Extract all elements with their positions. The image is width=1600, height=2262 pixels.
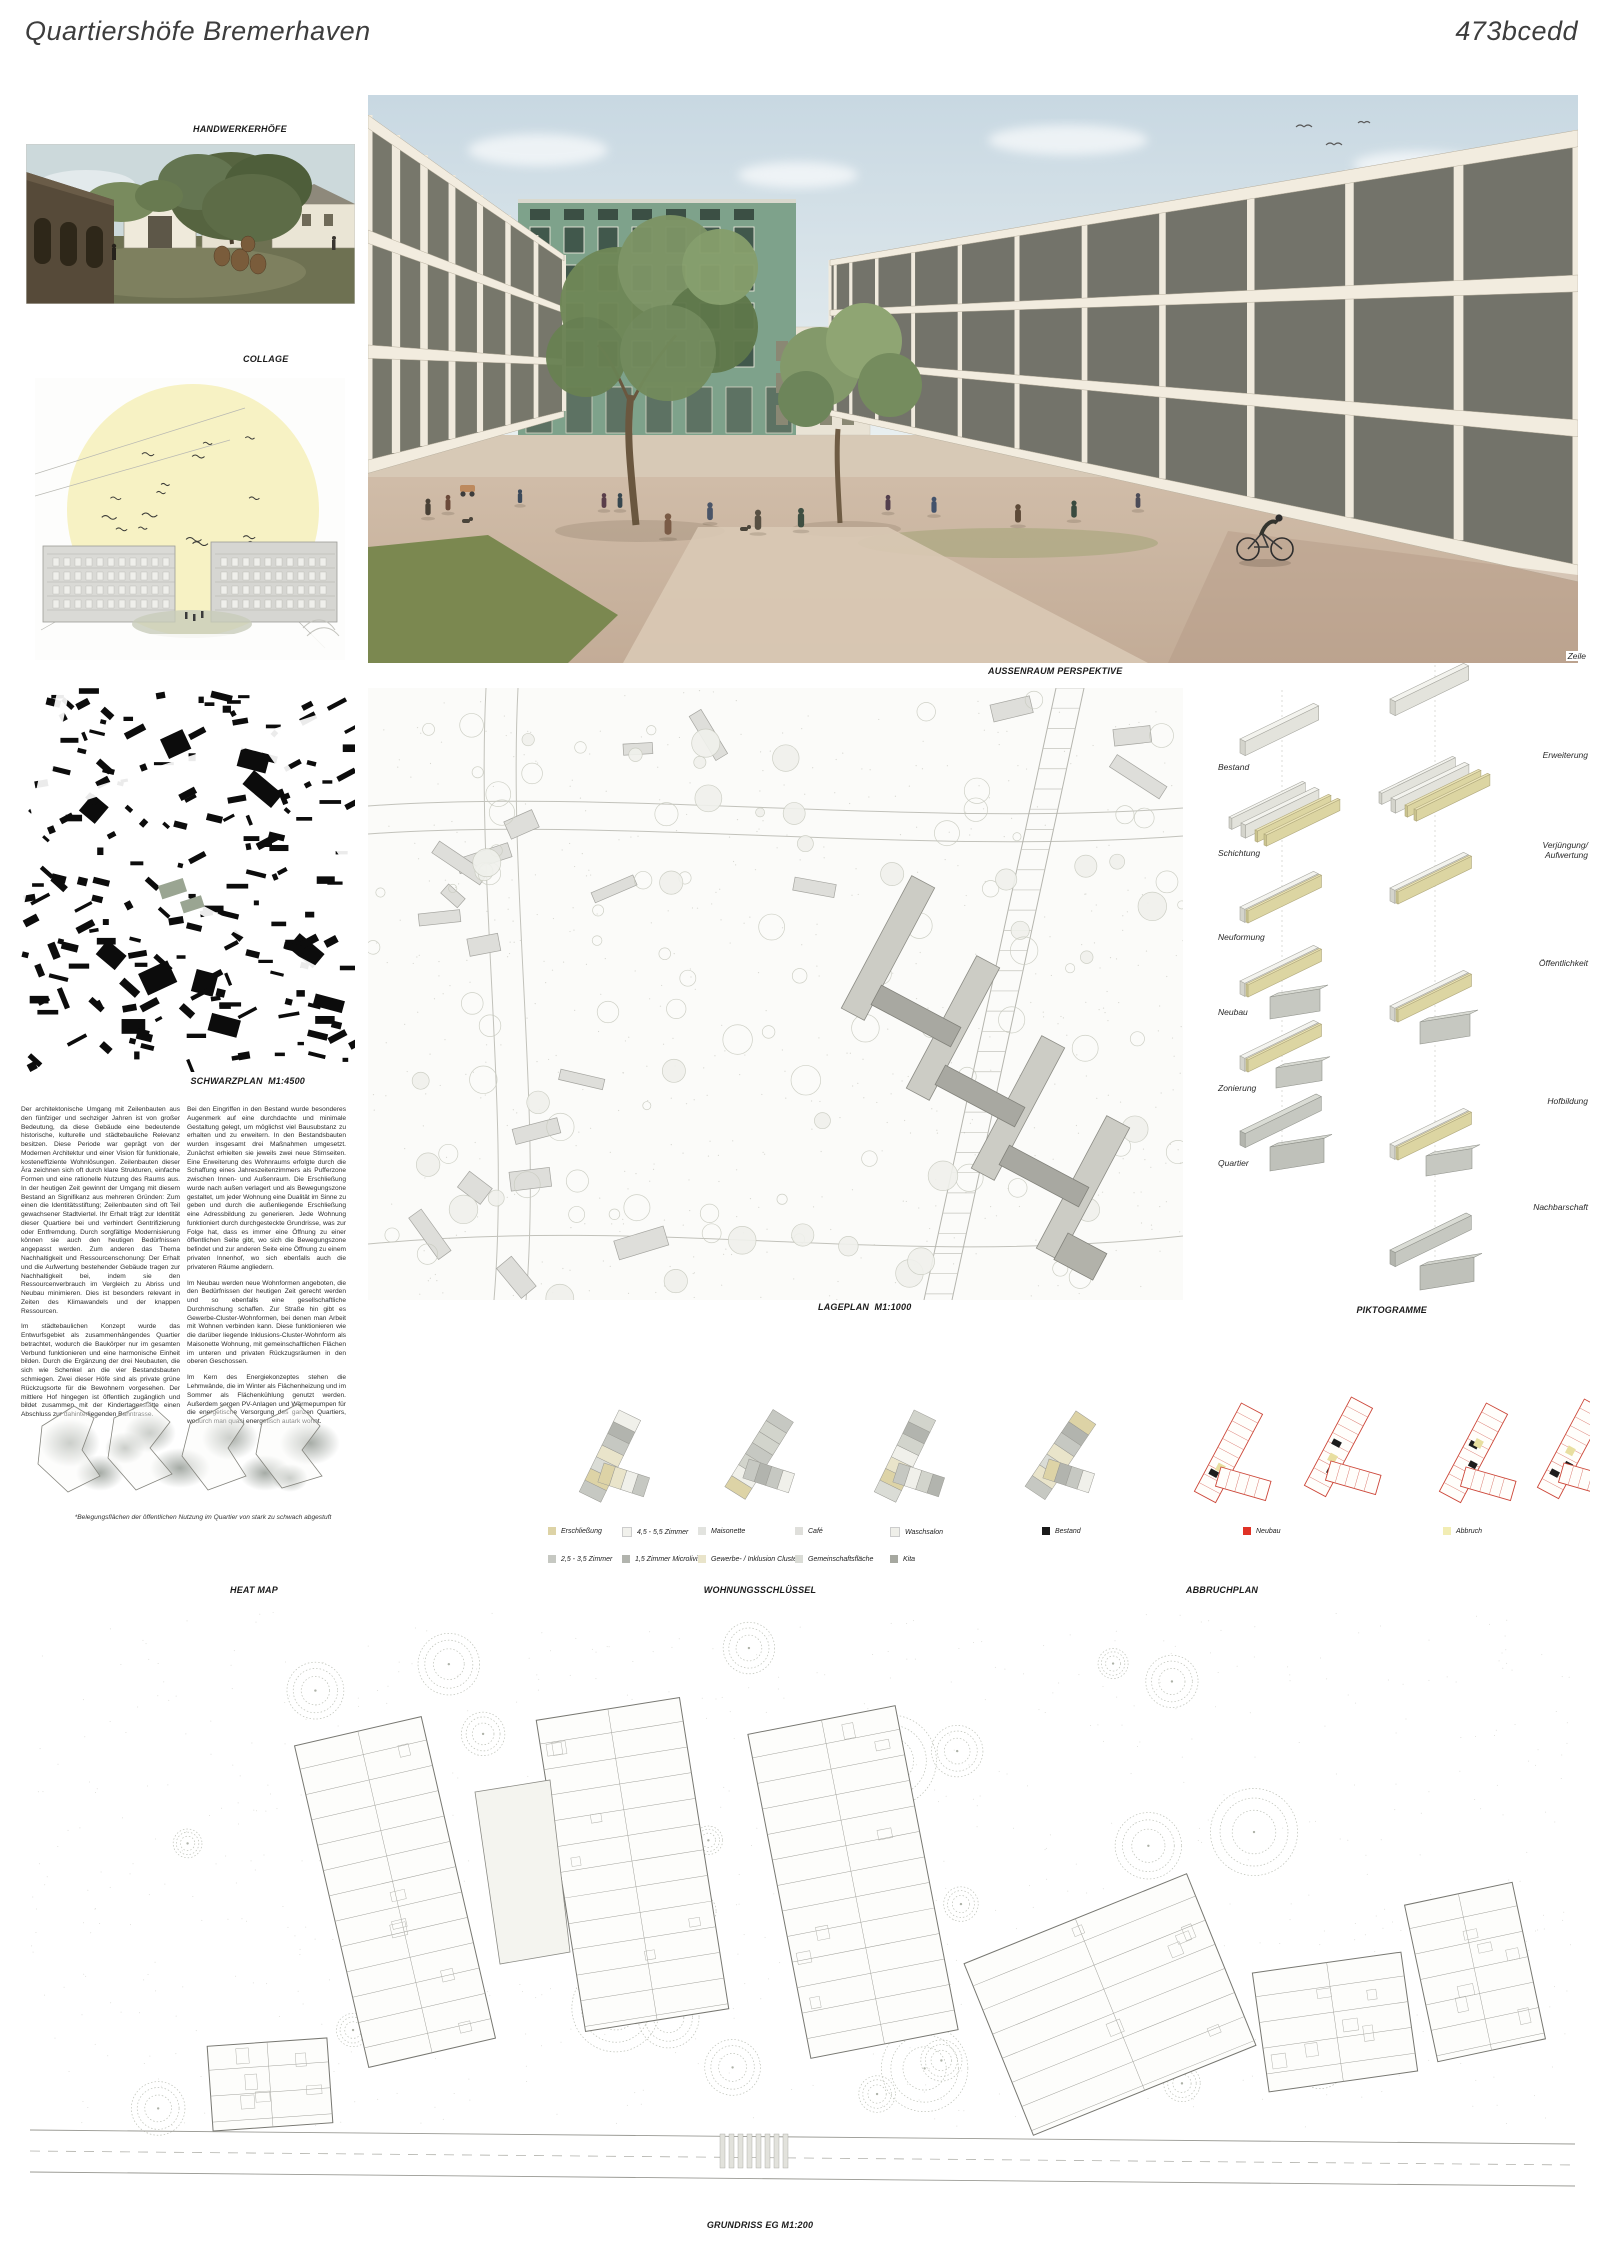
legend-item-maisonette: Maisonette <box>698 1527 745 1535</box>
legend-item-bestand: Bestand <box>1042 1527 1081 1535</box>
legend-swatch <box>698 1555 706 1563</box>
caption-abbruchplan: ABBRUCHPLAN <box>1158 1585 1286 1595</box>
paragraph: Bei den Eingriffen in den Bestand wurde … <box>187 1106 346 1273</box>
legend-swatch <box>890 1527 900 1537</box>
legend-item-cafe: Café <box>795 1527 823 1535</box>
legend-swatch <box>1042 1527 1050 1535</box>
legend-item-waschsalon: Waschsalon <box>890 1527 943 1537</box>
caption-schwarzplan: SCHWARZPLAN M1:4500 <box>148 1076 305 1086</box>
pikto-label-schichtung: Schichtung <box>1218 848 1260 858</box>
lageplan-site-plan-image <box>368 688 1183 1300</box>
legend-label: Abbruch <box>1456 1528 1482 1535</box>
pikto-label-oeffentlichkeit: Öffentlichkeit <box>1539 958 1588 968</box>
legend-swatch <box>795 1555 803 1563</box>
legend-swatch <box>795 1527 803 1535</box>
pikto-label-quartier: Quartier <box>1218 1158 1249 1168</box>
legend-label: Neubau <box>1256 1528 1281 1535</box>
pikto-label-erweiterung: Erweiterung <box>1543 750 1588 760</box>
paragraph: Im Neubau werden neue Wohnformen angebot… <box>187 1280 346 1368</box>
legend-item-neubau: Neubau <box>1243 1527 1281 1535</box>
wohnungsschluessel-diagram <box>530 1385 1130 1510</box>
legend-label: 1,5 Zimmer Microliving <box>635 1556 705 1563</box>
legend-label: Café <box>808 1528 823 1535</box>
aussenraum-perspektive-rendering <box>368 95 1578 663</box>
legend-swatch <box>622 1555 630 1563</box>
legend-item-gemeinschaftsflaeche: Gemeinschaftsfläche <box>795 1555 873 1563</box>
heat-map-note: *Belegungsflächen der öffentlichen Nutzu… <box>58 1514 348 1521</box>
legend-item-erschliessung: Erschließung <box>548 1527 602 1535</box>
legend-label: 2,5 - 3,5 Zimmer <box>561 1556 612 1563</box>
caption-wohnungsschluessel: WOHNUNGSSCHLÜSSEL <box>690 1585 830 1595</box>
legend-swatch <box>548 1555 556 1563</box>
paragraph: Der architektonische Umgang mit Zeilenba… <box>21 1106 180 1316</box>
legend-label: Maisonette <box>711 1528 745 1535</box>
collage-image <box>35 378 345 660</box>
legend-item-gewerbe-inklusion: Gewerbe- / Inklusion Cluster <box>698 1555 799 1563</box>
abbruchplan-diagram <box>1150 1385 1590 1515</box>
legend-label: Waschsalon <box>905 1529 943 1536</box>
legend-item-zimmer-25-35: 2,5 - 3,5 Zimmer <box>548 1555 612 1563</box>
pikto-label-nachbarschaft: Nachbarschaft <box>1533 1202 1588 1212</box>
legend-label: 4,5 - 5,5 Zimmer <box>637 1529 688 1536</box>
pikto-label-bestand: Bestand <box>1218 762 1249 772</box>
pikto-label-hofbildung: Hofbildung <box>1547 1096 1588 1106</box>
competition-board: Quartiershöfe Bremerhaven 473bcedd HANDW… <box>0 0 1600 2262</box>
pikto-label-zeile: Zeile <box>1566 651 1588 661</box>
pikto-label-neuformung: Neuformung <box>1218 932 1265 942</box>
body-text-column-1: Der architektonische Umgang mit Zeilenba… <box>21 1106 180 1427</box>
pikto-label-zonierung: Zonierung <box>1218 1083 1256 1093</box>
page-title: Quartiershöfe Bremerhaven <box>25 16 371 47</box>
body-text-column-2: Bei den Eingriffen in den Bestand wurde … <box>187 1106 346 1434</box>
legend-item-abbruch: Abbruch <box>1443 1527 1482 1535</box>
caption-collage: COLLAGE <box>243 354 288 364</box>
legend-swatch <box>1443 1527 1451 1535</box>
handwerkerhoefe-engraving-image <box>26 144 355 304</box>
legend-swatch <box>622 1527 632 1537</box>
pikto-label-verjuengung: Verjüngung/ Aufwertung <box>1542 840 1588 860</box>
project-code: 473bcedd <box>1455 16 1578 47</box>
legend-swatch <box>548 1527 556 1535</box>
legend-label: Kita <box>903 1556 915 1563</box>
caption-aussenraum-perspektive: AUSSENRAUM PERSPEKTIVE <box>988 666 1122 676</box>
legend-label: Gewerbe- / Inklusion Cluster <box>711 1556 799 1563</box>
legend-item-kita: Kita <box>890 1555 915 1563</box>
pikto-label-neubau: Neubau <box>1218 1007 1248 1017</box>
heat-map-diagram <box>30 1388 340 1513</box>
legend-label: Erschließung <box>561 1528 602 1535</box>
legend-swatch <box>698 1527 706 1535</box>
legend-label: Gemeinschaftsfläche <box>808 1556 873 1563</box>
caption-heat-map: HEAT MAP <box>198 1585 310 1595</box>
caption-handwerkerhoefe: HANDWERKERHÖFE <box>193 124 287 134</box>
schwarzplan-figure-ground-image <box>20 688 355 1072</box>
grundriss-eg-floor-plan <box>30 1612 1575 2212</box>
piktogramme-diagram <box>1210 630 1600 1330</box>
legend-item-zimmer-45-55: 4,5 - 5,5 Zimmer <box>622 1527 688 1537</box>
caption-grundriss: GRUNDRISS EG M1:200 <box>670 2220 850 2230</box>
legend-label: Bestand <box>1055 1528 1081 1535</box>
legend-swatch <box>890 1555 898 1563</box>
legend-item-microliving: 1,5 Zimmer Microliving <box>622 1555 705 1563</box>
caption-lageplan: LAGEPLAN M1:1000 <box>818 1302 911 1312</box>
legend-swatch <box>1243 1527 1251 1535</box>
